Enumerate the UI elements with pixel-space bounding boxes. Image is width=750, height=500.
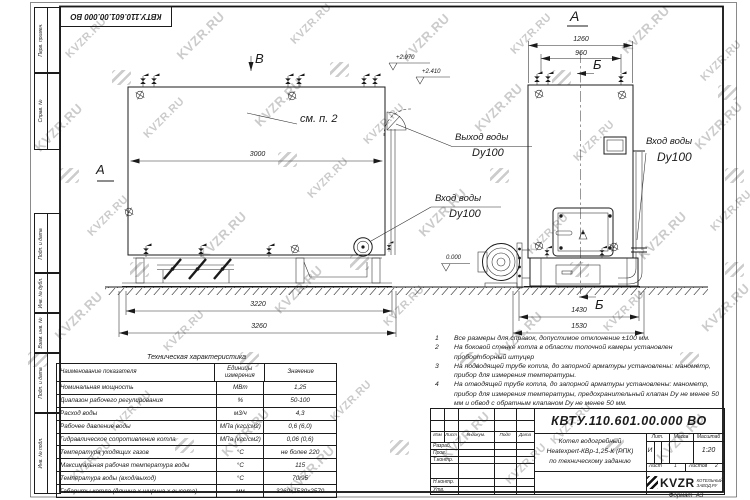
cell-value: 4,3 (263, 408, 336, 420)
cell-value: 50-100 (263, 395, 336, 407)
cell-value: 3260х1530х2570 (263, 485, 336, 497)
cell-parameter-name: Температура уходящих газов (57, 446, 216, 458)
cell-units: м3/ч (216, 408, 263, 420)
tech-table-body: Номинальная мощность МВт 1,25 Диапазон р… (57, 381, 336, 497)
tech-table-row: Максимальная рабочая температура воды °С… (57, 458, 336, 471)
note-number: 2 (435, 343, 439, 352)
sheets-value: 2 (715, 464, 718, 469)
water-outlet-label: Выход воды (455, 133, 508, 143)
rev-col-izm: Изм (431, 433, 444, 438)
cell-value: 115 (263, 459, 336, 471)
note-item: 2 На боковой стенке котла в области топо… (432, 343, 724, 362)
col-header-name: Наименование показателя (57, 364, 214, 381)
note-reference: см. п. 2 (300, 114, 337, 126)
col-header-units: Единицы измерения (214, 364, 264, 381)
rev-col-dokum: N докум. (458, 433, 494, 438)
elevation-2970: +2.970 (396, 55, 415, 61)
note-item: 3 На подводящей трубе котла, до запорной… (432, 362, 724, 381)
rev-col-podp: Подп (494, 433, 516, 438)
sheet-value: 1 (674, 464, 677, 469)
cell-parameter-name: Номинальная мощность (57, 382, 216, 394)
note-item: 4 На отводящей трубе котла, до запорной … (432, 380, 724, 408)
note-number: 3 (435, 362, 439, 371)
cell-value: не более 220 (263, 446, 336, 458)
arrow-label-b-top: Б (593, 58, 601, 72)
dim-1260: 1260 (558, 36, 604, 43)
sig-prov: Пров. (433, 451, 446, 456)
cell-units: °С (216, 459, 263, 471)
cell-parameter-name: Максимальная рабочая температура воды (57, 459, 216, 471)
note-item: 1 Все размеры для справок, допустимое от… (432, 334, 724, 343)
note-text: На подводящей трубе котла, до запорной а… (454, 363, 711, 379)
note-text: На отводящей трубе котла, до запорной ар… (454, 381, 719, 407)
mass-label: Масса (669, 435, 693, 440)
sig-utv: Утв. (433, 488, 444, 493)
tech-table-header: Наименование показателя Единицы измерени… (57, 364, 336, 381)
sig-tkontr: Т.контр. (433, 458, 453, 463)
cell-parameter-name: Габариты котла (длинна х ширина х высота… (57, 485, 216, 497)
title-block: КВТУ.110.601.00.000 ВО Изм Лист N докум.… (430, 408, 725, 495)
elevation-2410: +2.410 (422, 69, 441, 75)
note-text: На боковой стенке котла в области топочн… (454, 344, 672, 360)
tech-table-row: Температура уходящих газов °С не более 2… (57, 445, 336, 458)
cell-parameter-name: Диапазон рабочего регулирования (57, 395, 216, 407)
rev-col-data: Дата (516, 433, 534, 438)
cell-units: °С (216, 472, 263, 484)
dim-3260: 3260 (241, 323, 277, 330)
kvzr-logo-icon (647, 476, 658, 489)
tech-table-row: Рабочее давление воды МПа (кгс/см2) 0,6 … (57, 420, 336, 433)
cell-units: МПа (кгс/см2) (216, 421, 263, 433)
product-name-line1: Котел водогрейный (559, 437, 622, 447)
manufacturer-logo: KVZR КОТЕЛЬНЫЙ ЗАВОД.РУ (647, 472, 723, 493)
scale-value: 1:20 (693, 447, 724, 454)
water-inlet-dn: Dy100 (449, 209, 481, 221)
tech-table-row: Диапазон рабочего регулирования % 50-100 (57, 394, 336, 407)
cell-value: 0,6 (6,0) (263, 421, 336, 433)
tech-table-row: Номинальная мощность МВт 1,25 (57, 381, 336, 394)
tech-table-row: Расход воды м3/ч 4,3 (57, 407, 336, 420)
water-inlet-label: Вход воды (435, 194, 481, 204)
cell-parameter-name: Температура воды (вход/выход) (57, 472, 216, 484)
col-header-value: Значение (264, 364, 336, 381)
lit-label: Лит. (646, 435, 669, 440)
kvzr-logo-subtext: КОТЕЛЬНЫЙ ЗАВОД.РУ (697, 478, 723, 488)
scale-label: Масштаб (693, 435, 724, 440)
arrow-label-b-bottom: Б (595, 298, 603, 312)
tech-table-row: Габариты котла (длинна х ширина х высота… (57, 484, 336, 497)
view-label-a: А (570, 9, 579, 24)
product-name-line3: по техническому заданию (549, 457, 630, 467)
cell-parameter-name: Рабочее давление воды (57, 421, 216, 433)
view-label-v: В (255, 52, 264, 66)
format-note: Формат А3 (648, 493, 724, 499)
doc-number: КВТУ.110.601.00.000 ВО (534, 409, 724, 433)
tech-table-title: Техническая характеристика (56, 352, 337, 363)
tech-table-row: Температура воды (вход/выход) °С 70/95 (57, 471, 336, 484)
dim-1430: 1430 (562, 307, 596, 314)
elevation-zero: 0.000 (446, 255, 461, 261)
product-name: Котел водогрейный Heatexpert-КВр-1,25-К … (535, 434, 645, 470)
kvzr-logo-text: KVZR (660, 476, 695, 490)
cell-units: МВт (216, 382, 263, 394)
dim-3220: 3220 (240, 301, 276, 308)
notes-list: 1 Все размеры для справок, допустимое от… (432, 334, 724, 408)
sig-nkontr: Н.контр. (433, 480, 454, 485)
tech-table-row: Гидравлическое сопротивление котла МПа (… (57, 433, 336, 446)
rev-col-list: Лист (444, 433, 458, 438)
sheet-label: Лист (649, 464, 662, 469)
cell-units: % (216, 395, 263, 407)
section-label-a: А (96, 163, 105, 177)
water-outlet-dn: Dy100 (472, 148, 504, 160)
sig-razrab: Разраб. (433, 444, 451, 449)
cell-value: 0,06 (0,6) (263, 434, 336, 446)
cell-units: мм (216, 485, 263, 497)
dim-1530: 1530 (562, 323, 596, 330)
water-inlet2-label: Вход воды (646, 137, 692, 147)
tech-characteristics-table: Техническая характеристика Наименование … (56, 352, 337, 498)
drawing-page: KVZR.RUKVZR.RUKVZR.RUKVZR.RUKVZR.RUKVZR.… (0, 0, 750, 500)
note-number: 1 (435, 334, 439, 343)
note-text: Все размеры для справок, допустимое откл… (454, 335, 650, 342)
dim-960: 960 (561, 50, 601, 57)
lit-value: И (646, 448, 654, 455)
cell-value: 70/95 (263, 472, 336, 484)
cell-units: °С (216, 446, 263, 458)
cell-value: 1,25 (263, 382, 336, 394)
water-inlet2-dn: Dy100 (657, 151, 692, 164)
cell-units: МПа (кгс/см2) (216, 434, 263, 446)
dim-3000: 3000 (230, 151, 285, 158)
cell-parameter-name: Расход воды (57, 408, 216, 420)
cell-parameter-name: Гидравлическое сопротивление котла (57, 434, 216, 446)
sheets-label: Листов (689, 464, 707, 469)
note-number: 4 (435, 380, 439, 389)
product-name-line2: Heatexpert-КВр-1,25-К (РПК) (547, 447, 634, 457)
